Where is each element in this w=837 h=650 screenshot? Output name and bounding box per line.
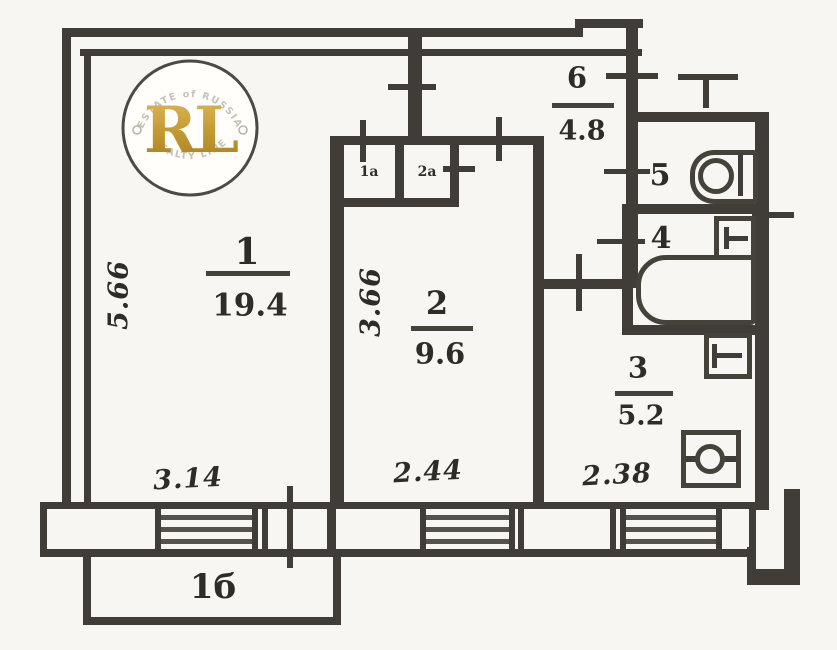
door-opening-tick (752, 212, 794, 218)
bathtub-icon (636, 255, 756, 325)
floor-plan: 1 19.4 2 9.6 6 4.8 3 5.2 5 4 1а 2а 1б 5.… (0, 0, 837, 650)
door-opening-tick (287, 486, 293, 568)
window-hatch (426, 527, 509, 532)
room-3-fraction-line (615, 391, 673, 396)
window-band-divider (327, 502, 336, 556)
window-hatch (626, 515, 716, 520)
room-5-number: 5 (650, 161, 671, 191)
window-hatch (626, 539, 716, 544)
dimension-room2-width: 2.44 (392, 457, 463, 488)
window-band-divider (518, 502, 524, 556)
dimension-room2-height: 3.66 (358, 267, 385, 337)
room-2-number: 2 (426, 287, 448, 319)
room-1-number: 1 (234, 234, 259, 270)
wall-room2-right (533, 136, 544, 505)
room-6-fraction-line (552, 103, 614, 108)
wall-wc-top (626, 112, 758, 122)
dimension-kitchen-width: 2.38 (581, 460, 652, 491)
balcony-wall (83, 617, 341, 625)
realty-logo: ESTATE of RUSSIA REALTY LINE RL (118, 56, 262, 200)
door-opening-tick (576, 254, 582, 311)
door-opening-tick (606, 73, 658, 79)
wall-hall-kitchen (544, 279, 626, 289)
wall (62, 28, 582, 37)
window-hatch (161, 527, 252, 532)
sink-icon (738, 154, 743, 196)
room-6-number: 6 (567, 64, 587, 93)
closet-1a-label: 1а (360, 165, 379, 179)
room-1-fraction-line (206, 271, 290, 276)
sink-icon (698, 158, 734, 194)
window-hatch (509, 502, 515, 556)
wall-closet-divider (395, 140, 404, 202)
wall-bath-left (622, 204, 633, 335)
door-opening-tick (443, 166, 475, 172)
door-opening-tick (597, 239, 645, 244)
wall (575, 19, 643, 28)
balcony-wall (83, 555, 91, 625)
wall (80, 49, 642, 56)
window-hatch (252, 502, 258, 556)
wall (575, 19, 583, 37)
room-1-area: 19.4 (212, 291, 288, 322)
room-6-area: 4.8 (559, 118, 606, 145)
door-opening-tick (604, 169, 650, 174)
wall (62, 28, 71, 509)
cabinet-icon (728, 236, 748, 241)
room-2-fraction-line (411, 326, 473, 331)
dimension-left-height: 5.66 (106, 260, 133, 330)
balcony-label: 1б (190, 570, 236, 604)
room-3-number: 3 (628, 354, 648, 383)
room-3-area: 5.2 (618, 403, 665, 430)
window-hatch (426, 539, 509, 544)
window-band-top (40, 502, 756, 509)
dimension-room1-width: 3.14 (152, 464, 223, 495)
room-4-number: 4 (651, 224, 672, 254)
window-band-divider (610, 502, 616, 556)
window-band-bottom (40, 549, 756, 557)
room-2-area: 9.6 (415, 340, 465, 369)
window-hatch (161, 515, 252, 520)
door-opening-tick (703, 74, 709, 108)
door-opening-tick (360, 120, 366, 162)
window-hatch (161, 539, 252, 544)
logo-monogram: RL (144, 93, 238, 168)
wall-wc-bath (622, 204, 758, 214)
wall (84, 49, 91, 505)
window-hatch (716, 502, 722, 556)
door-opening-tick (388, 84, 436, 90)
window-hatch (426, 515, 509, 520)
wall-room1-room2 (330, 136, 344, 505)
door-opening-tick (496, 117, 502, 161)
window-hatch (626, 527, 716, 532)
balcony-wall (333, 555, 341, 625)
closet-2a-label: 2а (418, 165, 437, 179)
wall-pier (747, 547, 756, 577)
cabinet-icon (716, 353, 742, 358)
stove-icon (695, 444, 725, 474)
window-band-divider (262, 502, 268, 556)
window-band-cap (40, 502, 47, 557)
